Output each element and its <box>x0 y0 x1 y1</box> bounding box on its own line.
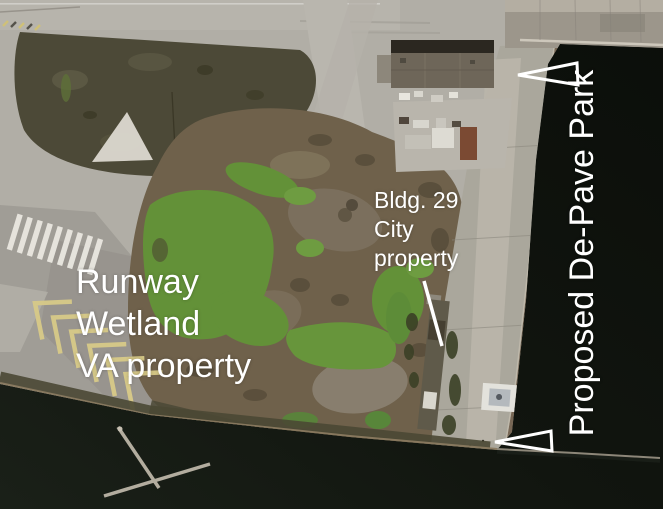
depave-arrow-top-icon <box>518 63 578 85</box>
aerial-map: Runway Wetland VA property Bldg. 29 City… <box>0 0 663 509</box>
annotation-overlay <box>0 0 663 509</box>
depave-arrow-bottom-icon <box>495 431 552 451</box>
bldg29-leader-line <box>424 281 442 346</box>
